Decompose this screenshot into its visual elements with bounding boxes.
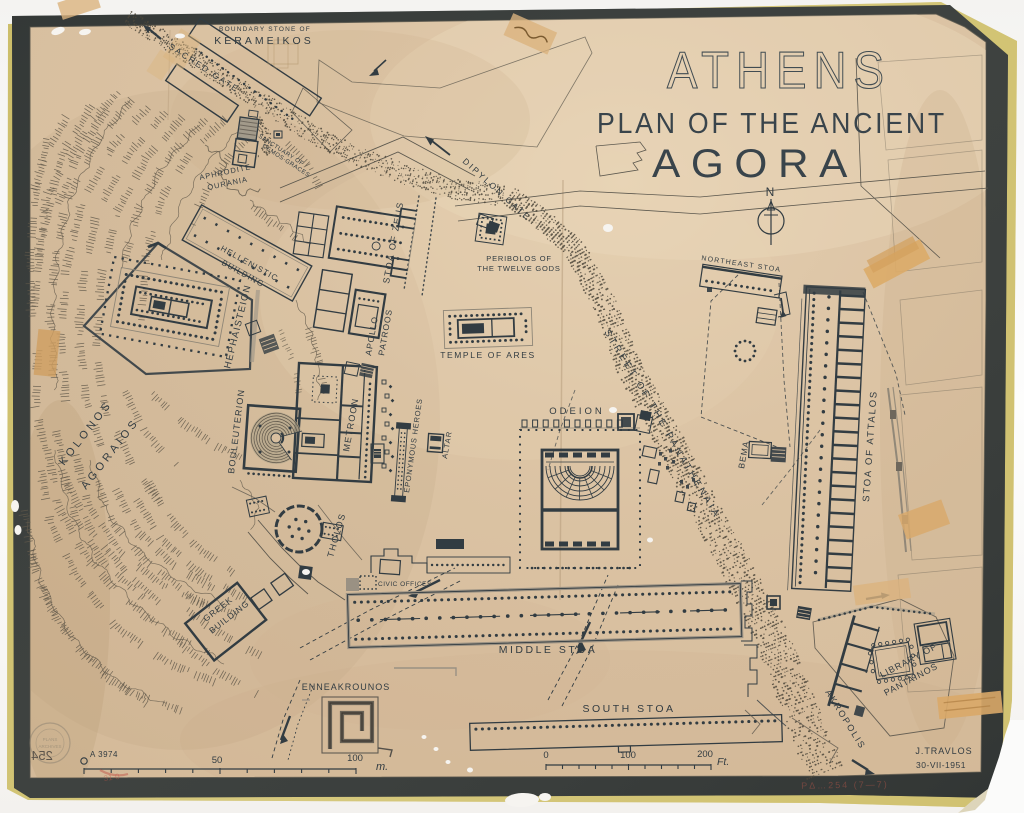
svg-text:PLAN OF THE ANCIENT: PLAN OF THE ANCIENT bbox=[597, 108, 947, 140]
svg-text:30-VII-1951: 30-VII-1951 bbox=[916, 760, 966, 770]
svg-text:SOUTH STOA: SOUTH STOA bbox=[582, 703, 675, 715]
svg-text:Ft.: Ft. bbox=[717, 756, 729, 768]
svg-text:m.: m. bbox=[376, 761, 388, 773]
svg-text:200: 200 bbox=[697, 749, 713, 760]
svg-text:AGORA: AGORA bbox=[652, 142, 858, 186]
svg-text:TEMPLE OF ARES: TEMPLE OF ARES bbox=[440, 350, 536, 360]
svg-text:0: 0 bbox=[543, 750, 548, 761]
svg-text:MIDDLE STOA: MIDDLE STOA bbox=[499, 644, 598, 656]
svg-text:A 3974: A 3974 bbox=[90, 750, 118, 759]
svg-text:J.TRAVLOS: J.TRAVLOS bbox=[915, 746, 972, 756]
svg-text:ODEION: ODEION bbox=[549, 406, 604, 417]
svg-text:100: 100 bbox=[347, 753, 363, 764]
svg-text:254: 254 bbox=[31, 748, 53, 763]
svg-text:N: N bbox=[766, 185, 775, 199]
svg-text:100: 100 bbox=[620, 750, 636, 761]
svg-text:PΔ…254 (7—7): PΔ…254 (7—7) bbox=[801, 779, 889, 791]
svg-text:THE TWELVE GODS: THE TWELVE GODS bbox=[477, 264, 560, 273]
svg-text:ENNEAKROUNOS: ENNEAKROUNOS bbox=[302, 682, 391, 692]
svg-text:CIVIC OFFICES: CIVIC OFFICES bbox=[378, 581, 432, 588]
svg-text:KERAMEIKOS: KERAMEIKOS bbox=[214, 35, 313, 47]
svg-text:BOUNDARY STONE OF: BOUNDARY STONE OF bbox=[219, 26, 311, 33]
svg-text:ATHENS: ATHENS bbox=[667, 42, 891, 100]
svg-text:PLANS: PLANS bbox=[43, 737, 58, 742]
svg-text:PERIBOLOS OF: PERIBOLOS OF bbox=[486, 254, 551, 263]
svg-text:50: 50 bbox=[212, 755, 223, 766]
